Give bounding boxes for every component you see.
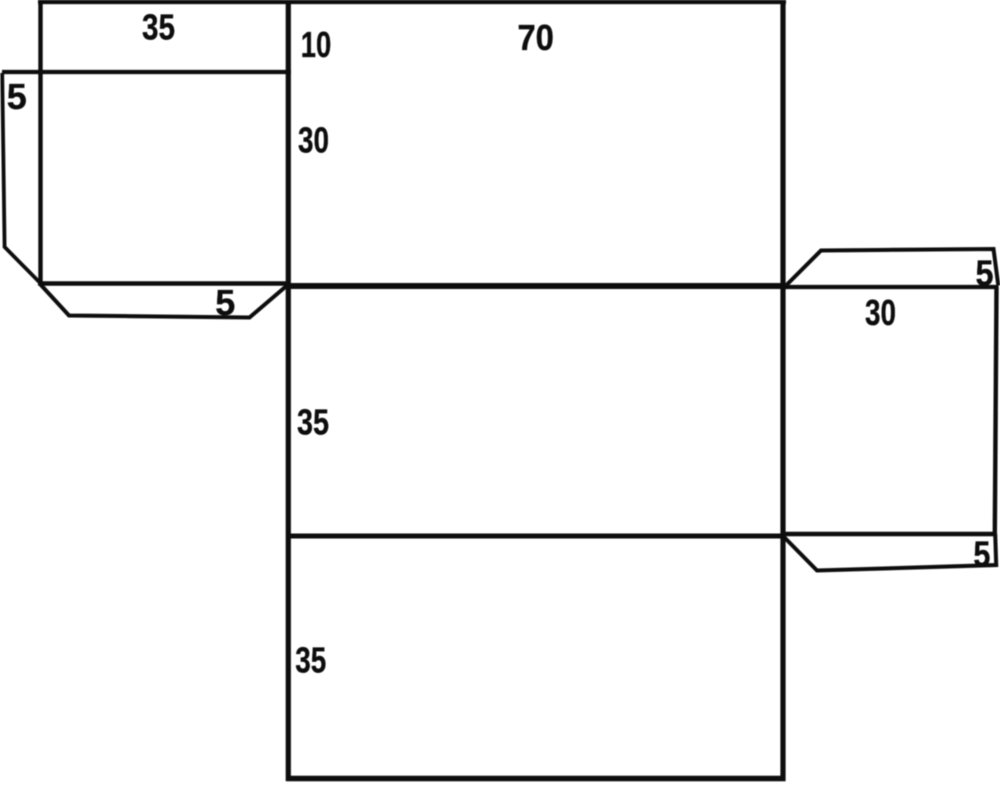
svg-text:5: 5 (215, 282, 235, 323)
svg-text:35: 35 (297, 402, 329, 443)
svg-text:10: 10 (301, 24, 332, 65)
svg-text:35: 35 (295, 639, 326, 680)
svg-text:30: 30 (298, 120, 329, 161)
svg-text:70: 70 (517, 17, 554, 58)
svg-text:5: 5 (973, 534, 990, 575)
svg-text:5: 5 (7, 76, 27, 117)
svg-text:30: 30 (865, 292, 896, 333)
svg-text:35: 35 (142, 7, 175, 48)
svg-text:5: 5 (976, 252, 994, 293)
